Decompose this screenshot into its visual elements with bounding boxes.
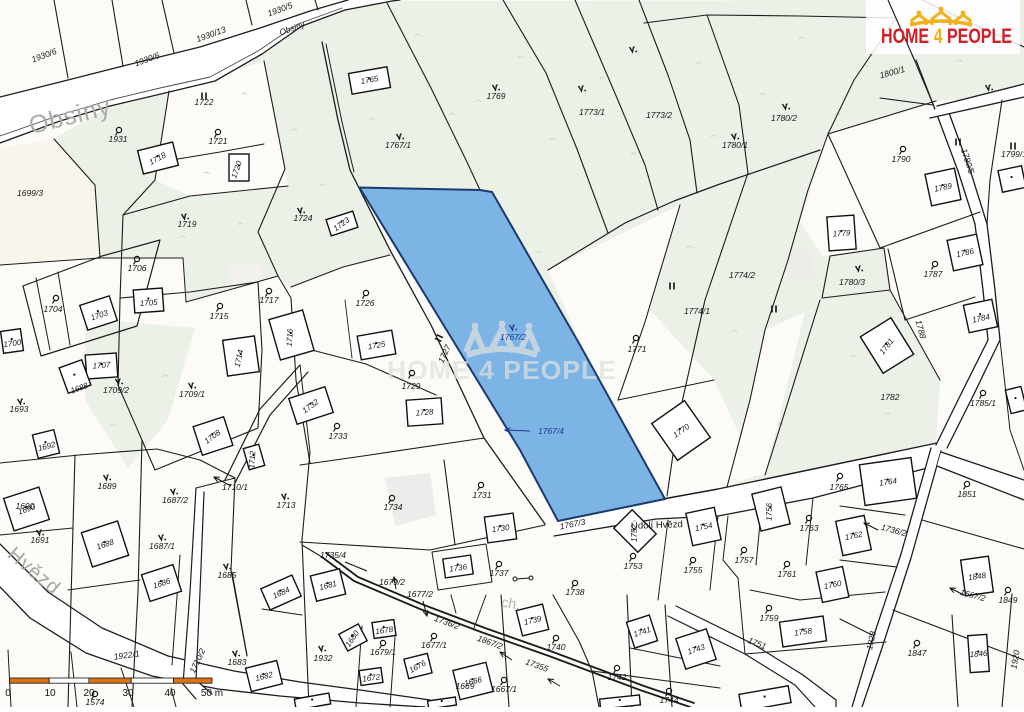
svg-text:1799/1: 1799/1 bbox=[1001, 149, 1024, 159]
svg-text:1847: 1847 bbox=[908, 648, 927, 658]
svg-text:1740: 1740 bbox=[547, 642, 566, 652]
svg-text:1774/2: 1774/2 bbox=[729, 270, 755, 280]
svg-text:1753: 1753 bbox=[624, 561, 643, 571]
svg-text:1709/1: 1709/1 bbox=[179, 389, 205, 399]
svg-text:1722: 1722 bbox=[195, 97, 214, 107]
svg-text:1704: 1704 bbox=[44, 304, 63, 314]
svg-text:1780/3: 1780/3 bbox=[839, 277, 865, 287]
svg-text:1761: 1761 bbox=[778, 569, 797, 579]
svg-text:1687/2: 1687/2 bbox=[162, 495, 188, 505]
svg-text:1715: 1715 bbox=[210, 311, 229, 321]
svg-text:1780/2: 1780/2 bbox=[771, 113, 797, 123]
svg-text:1689: 1689 bbox=[98, 481, 117, 491]
svg-text:HOME 4 PEOPLE: HOME 4 PEOPLE bbox=[881, 25, 1012, 48]
svg-text:1699/3: 1699/3 bbox=[17, 188, 43, 198]
svg-text:30: 30 bbox=[122, 688, 134, 699]
svg-text:1763: 1763 bbox=[800, 523, 819, 533]
svg-text:1846: 1846 bbox=[969, 649, 988, 659]
svg-text:1677/1: 1677/1 bbox=[421, 640, 447, 650]
svg-text:1767/1: 1767/1 bbox=[385, 140, 411, 150]
svg-text:1683: 1683 bbox=[228, 657, 247, 667]
svg-text:1713: 1713 bbox=[277, 500, 296, 510]
svg-text:1731: 1731 bbox=[473, 490, 492, 500]
svg-text:50 m: 50 m bbox=[201, 688, 223, 699]
svg-text:1774/1: 1774/1 bbox=[684, 306, 710, 316]
svg-text:1787: 1787 bbox=[924, 269, 943, 279]
svg-text:1769: 1769 bbox=[487, 91, 506, 101]
svg-text:1767/2: 1767/2 bbox=[500, 332, 526, 342]
svg-text:10: 10 bbox=[44, 688, 56, 699]
svg-text:1712: 1712 bbox=[247, 450, 257, 469]
svg-text:1755: 1755 bbox=[684, 565, 703, 575]
svg-text:1677/2: 1677/2 bbox=[407, 589, 433, 599]
svg-text:1932: 1932 bbox=[314, 653, 333, 663]
svg-text:1849: 1849 bbox=[999, 595, 1018, 605]
svg-text:1773/1: 1773/1 bbox=[579, 107, 605, 117]
svg-text:1931: 1931 bbox=[109, 134, 128, 144]
svg-text:1765: 1765 bbox=[830, 482, 849, 492]
svg-text:1734: 1734 bbox=[384, 502, 403, 512]
svg-text:1790: 1790 bbox=[892, 154, 911, 164]
svg-text:1780/1: 1780/1 bbox=[722, 140, 748, 150]
svg-text:1728: 1728 bbox=[415, 407, 434, 417]
svg-text:1779: 1779 bbox=[832, 228, 851, 238]
svg-text:HOME 4 PEOPLE: HOME 4 PEOPLE bbox=[387, 355, 617, 385]
svg-text:1706: 1706 bbox=[128, 263, 147, 273]
svg-text:40: 40 bbox=[164, 688, 176, 699]
svg-text:1771: 1771 bbox=[628, 344, 647, 354]
svg-text:1719: 1719 bbox=[178, 219, 197, 229]
svg-text:1742: 1742 bbox=[608, 672, 627, 682]
svg-text:1773/2: 1773/2 bbox=[646, 110, 672, 120]
svg-text:20: 20 bbox=[83, 688, 95, 699]
svg-text:1707: 1707 bbox=[92, 360, 111, 370]
svg-text:1756: 1756 bbox=[765, 502, 774, 521]
svg-text:1759: 1759 bbox=[760, 613, 779, 623]
svg-text:1782: 1782 bbox=[881, 392, 900, 402]
svg-text:1709/2: 1709/2 bbox=[103, 385, 129, 395]
svg-text:1757: 1757 bbox=[735, 555, 754, 565]
svg-text:1685: 1685 bbox=[218, 570, 237, 580]
svg-text:1667/1: 1667/1 bbox=[491, 684, 517, 694]
svg-text:1679/1: 1679/1 bbox=[370, 647, 396, 657]
svg-text:1737: 1737 bbox=[490, 568, 509, 578]
svg-text:0: 0 bbox=[5, 688, 11, 699]
svg-text:1729: 1729 bbox=[402, 381, 421, 391]
svg-text:1735/4: 1735/4 bbox=[320, 550, 346, 560]
svg-text:1693: 1693 bbox=[10, 404, 29, 414]
svg-text:ch.: ch. bbox=[500, 594, 521, 613]
svg-text:1705: 1705 bbox=[139, 298, 158, 308]
svg-text:1716: 1716 bbox=[285, 328, 295, 347]
svg-text:1785/1: 1785/1 bbox=[970, 398, 996, 408]
svg-text:1744: 1744 bbox=[660, 695, 679, 705]
svg-text:1721: 1721 bbox=[209, 136, 228, 146]
svg-text:Údolí Hvězd: Údolí Hvězd bbox=[631, 519, 683, 532]
svg-text:1733: 1733 bbox=[329, 431, 348, 441]
svg-text:1717: 1717 bbox=[260, 295, 279, 305]
svg-text:1691: 1691 bbox=[31, 535, 50, 545]
svg-text:1669: 1669 bbox=[456, 681, 475, 691]
svg-text:1726: 1726 bbox=[356, 298, 375, 308]
svg-text:1690: 1690 bbox=[16, 501, 35, 511]
svg-text:1851: 1851 bbox=[958, 489, 977, 499]
svg-text:1724: 1724 bbox=[294, 213, 313, 223]
svg-text:1767/4: 1767/4 bbox=[538, 426, 564, 436]
svg-text:1738: 1738 bbox=[566, 587, 585, 597]
svg-text:1687/1: 1687/1 bbox=[149, 541, 175, 551]
